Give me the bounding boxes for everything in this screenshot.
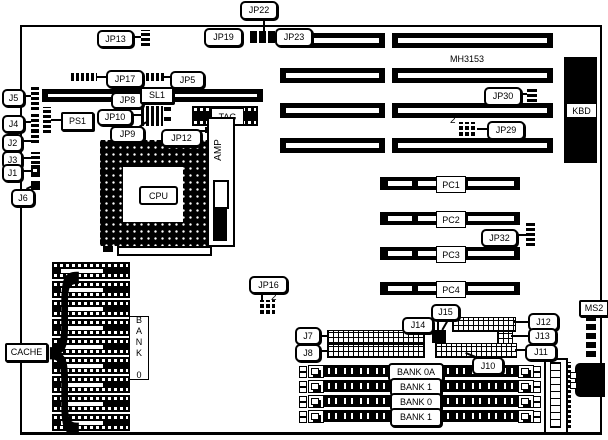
pci-slot-segment	[388, 251, 412, 256]
isa-slot-row2-right	[392, 68, 553, 83]
cache-label: CACHE	[5, 343, 48, 362]
ps1-label: PS1	[61, 112, 94, 131]
jp19-label: JP19	[204, 28, 243, 47]
j2-connector	[31, 132, 39, 143]
jp10-label: JP10	[97, 109, 133, 126]
ms2-jumper	[586, 315, 596, 357]
pci-slot-segment	[418, 286, 436, 291]
board-border-right	[600, 25, 602, 433]
isa-slot-row3-right	[392, 103, 553, 118]
simm-pin	[533, 387, 541, 393]
j6-label: J6	[11, 189, 35, 207]
pci-slot-segment	[468, 216, 514, 221]
simm-latch-right	[518, 395, 534, 408]
board-model-text: MH3153	[450, 54, 502, 65]
simm-latch-left	[308, 380, 324, 393]
isa-slot-row2-left	[280, 68, 385, 83]
j12-header	[452, 317, 516, 332]
board-border-top	[20, 25, 602, 27]
board-border-bottom	[20, 432, 602, 435]
j1-connector-pin	[33, 169, 37, 172]
pc4-label: PC4	[436, 281, 466, 298]
isa-slot-row1-right	[392, 33, 553, 48]
j5-connector	[31, 85, 39, 110]
jp12-label: JP12	[161, 129, 202, 147]
j10-label: J10	[472, 357, 504, 375]
j11-leader	[515, 349, 525, 351]
j8-label: J8	[295, 344, 321, 362]
j11-label: J11	[525, 344, 557, 361]
jp30-jumper	[527, 87, 537, 102]
simm-pin	[299, 387, 307, 393]
j8-header	[327, 344, 425, 358]
kbd-label: KBD	[566, 103, 597, 118]
motherboard-diagram: MH3153 KBD 2 TAG CPU AMP	[0, 0, 608, 440]
pci-slot-pc3: PC3	[380, 247, 520, 260]
amp-label: AMP	[213, 126, 227, 174]
sl1-label: SL1	[140, 87, 174, 104]
simm-pin	[299, 417, 307, 423]
mouse-port-pin	[570, 372, 577, 379]
j14-label: J14	[402, 317, 434, 334]
jp13-jumper	[141, 30, 150, 46]
cpu-socket-nub	[103, 246, 113, 252]
jp10-tick-bottom	[164, 117, 171, 121]
j1-label: J1	[2, 164, 23, 182]
jp29-pin2-marker: 2	[450, 115, 459, 127]
j13-label: J13	[528, 328, 557, 345]
jp32-label: JP32	[481, 229, 518, 247]
jp10-tick-top	[164, 107, 171, 111]
j5-label: J5	[2, 89, 25, 107]
pc2-label: PC2	[436, 211, 466, 228]
j13-leader	[511, 335, 528, 337]
pci-slot-pc2: PC2	[380, 212, 520, 225]
j2-label: J2	[2, 134, 23, 152]
power-connector-pins	[550, 362, 561, 428]
pci-slot-segment	[388, 286, 412, 291]
pci-slot-segment	[468, 251, 514, 256]
jp23-label: JP23	[275, 28, 313, 47]
pci-slot-pc4: PC4	[380, 282, 520, 295]
pci-slot-segment	[418, 251, 436, 256]
isa-slot-row4-left	[280, 138, 385, 153]
mouse-port-pin	[570, 382, 577, 389]
simm-latch-right	[518, 365, 534, 378]
jp17-label: JP17	[106, 70, 144, 88]
jp5-header	[146, 73, 165, 81]
simm-pin	[533, 372, 541, 378]
jp17-header	[71, 73, 97, 81]
simm-latch-right	[518, 380, 534, 393]
pc3-label: PC3	[436, 246, 466, 263]
simm-latch-left	[308, 410, 324, 423]
jp29-label: JP29	[487, 121, 525, 140]
jp22-label: JP22	[240, 1, 278, 20]
ms2-label: MS2	[579, 300, 608, 317]
simm-latch-left	[308, 365, 324, 378]
jp5-label: JP5	[170, 71, 205, 89]
jp30-label: JP30	[484, 87, 522, 106]
isa-slot-row4-right	[392, 138, 553, 153]
simm-pin	[299, 372, 307, 378]
j4-label: J4	[2, 115, 25, 133]
j15-label: J15	[431, 304, 460, 321]
simm-pin	[533, 402, 541, 408]
pci-slot-segment	[388, 216, 412, 221]
cpu-label: CPU	[139, 186, 178, 205]
simm-latch-left	[308, 395, 324, 408]
jp9-label: JP9	[110, 126, 145, 143]
pci-slot-segment	[468, 181, 514, 186]
pci-slot-segment	[418, 216, 436, 221]
j3-connector	[31, 152, 40, 164]
j7-label: J7	[295, 327, 321, 345]
jp13-label: JP13	[97, 30, 134, 48]
jp32-jumper	[526, 222, 535, 246]
isa-slot-row3-left	[280, 103, 385, 118]
board-border-left	[20, 25, 22, 435]
simm-pin	[299, 402, 307, 408]
pci-slot-pc1: PC1	[380, 177, 520, 190]
simm-latch-right	[518, 410, 534, 423]
jp29-jumper	[459, 122, 477, 136]
cache-brace: {	[41, 242, 50, 440]
simm-pin	[533, 417, 541, 423]
j12-leader	[514, 321, 528, 323]
pci-slot-segment	[418, 181, 436, 186]
jp29-leader	[477, 128, 487, 130]
cpu-socket-ledge	[117, 246, 212, 256]
j14-jumper	[432, 330, 446, 343]
pci-slot-segment	[388, 181, 412, 186]
ps1-connector	[43, 107, 51, 133]
jp16-label: JP16	[249, 276, 288, 294]
pci-slot-segment	[468, 286, 514, 291]
pc1-label: PC1	[436, 176, 466, 193]
amp-inner-slot	[213, 180, 229, 209]
bank1-label: BANK 1	[390, 408, 442, 427]
amp-inner-block	[213, 207, 227, 241]
isa-slot-row1-left	[303, 33, 385, 48]
cache-bank0-vertical-label: BANK 0	[129, 316, 149, 380]
